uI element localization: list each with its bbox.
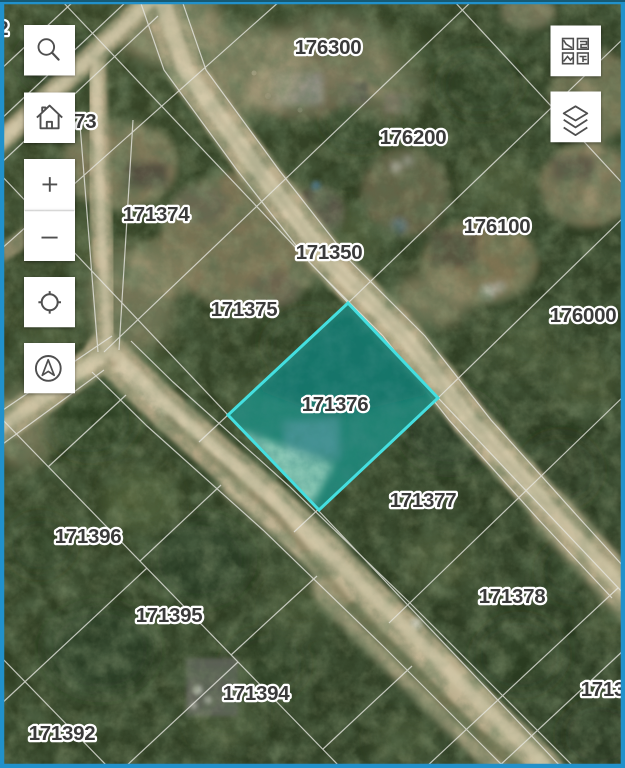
- svg-text:176200: 176200: [380, 126, 447, 149]
- svg-text:171350: 171350: [296, 241, 363, 264]
- svg-text:171395: 171395: [136, 604, 203, 627]
- svg-text:171378: 171378: [479, 585, 546, 608]
- svg-text:176100: 176100: [464, 215, 531, 238]
- svg-text:171374: 171374: [123, 203, 191, 226]
- svg-text:171396: 171396: [55, 525, 122, 548]
- svg-text:171379: 171379: [581, 678, 625, 701]
- svg-text:176300: 176300: [295, 36, 362, 59]
- svg-text:171392: 171392: [29, 722, 96, 745]
- svg-text:171377: 171377: [390, 489, 457, 512]
- svg-text:176000: 176000: [550, 304, 617, 327]
- svg-text:171376: 171376: [302, 393, 369, 416]
- svg-text:171375: 171375: [211, 298, 278, 321]
- svg-text:171394: 171394: [223, 682, 291, 705]
